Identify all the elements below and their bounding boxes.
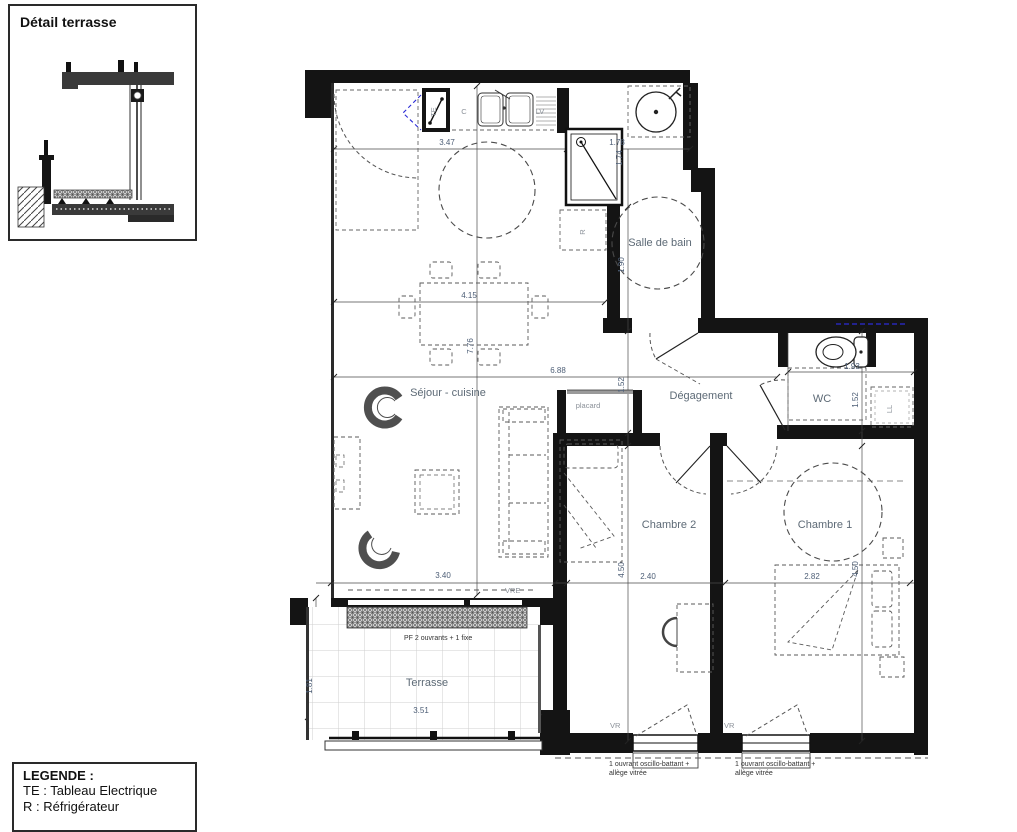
dining-chair — [430, 349, 452, 365]
bed-fold — [788, 570, 858, 650]
window-note-left-2: allège vitrée — [609, 770, 647, 777]
armchair — [362, 534, 396, 565]
window-note-right-2: allège vitrée — [735, 770, 773, 777]
sofa — [499, 407, 548, 557]
terrace-section-drawing — [10, 32, 195, 237]
window-chambre1 — [742, 705, 810, 768]
label-chambre2: Chambre 2 — [642, 519, 696, 531]
legend-title: LEGENDE : — [23, 768, 195, 783]
label-terrasse: Terrasse — [406, 677, 448, 689]
sill-hatch — [347, 607, 527, 628]
dim-chambre2-depth: 4.50 — [617, 562, 626, 578]
dim-terrasse-width: 3.51 — [413, 706, 429, 715]
dining-chair — [532, 296, 548, 318]
section-soil — [18, 187, 44, 227]
dim-sejour-width: 4.15 — [461, 291, 477, 300]
legend-panel: LEGENDE : TE : Tableau Electrique R : Ré… — [12, 762, 197, 832]
section-bottom-slab — [52, 190, 174, 222]
fixture-labels: TE C LV R LL — [429, 107, 894, 413]
bed-pillow — [872, 611, 892, 647]
dim-kitchen-width: 3.47 — [439, 138, 455, 147]
label-cuisson: C — [461, 107, 467, 116]
dim-chambre2-width: 2.40 — [640, 572, 656, 581]
label-vr-c2: VR — [610, 721, 621, 730]
desk-chair — [663, 618, 677, 646]
armchair — [368, 391, 399, 425]
window-note-left-1: 1 ouvrant oscillo-battant + — [609, 761, 689, 768]
section-glazing — [130, 85, 144, 200]
dim-bath-width: 1.90 — [617, 257, 626, 273]
label-te: TE — [429, 107, 438, 117]
legend-item-r: R : Réfrigérateur — [23, 799, 195, 815]
bed-single — [560, 440, 622, 562]
nightstand — [880, 657, 904, 677]
label-wc: WC — [813, 393, 831, 405]
window-note-right-1: 1 ouvrant oscillo-battant + — [735, 761, 815, 768]
washbasin — [628, 86, 690, 137]
coffee-table — [415, 470, 459, 514]
label-degagement: Dégagement — [670, 390, 733, 402]
armchairs — [362, 391, 399, 566]
label-chambre1: Chambre 1 — [798, 519, 852, 531]
label-sejour: Séjour - cuisine — [410, 387, 486, 399]
detail-terrasse-panel: Détail terrasse — [8, 4, 197, 241]
toilet — [816, 337, 868, 367]
dim-wc-width: 1.93 — [844, 362, 860, 371]
tv-console — [334, 437, 360, 509]
kitchen-door-arc — [334, 94, 418, 178]
legend-item-te: TE : Tableau Electrique — [23, 783, 195, 799]
dim-bay-width: 3.40 — [435, 571, 451, 580]
bed-double — [775, 565, 899, 655]
dim-wc-depth: 1.52 — [851, 392, 860, 408]
dim-sejour-total: 6.88 — [550, 366, 566, 375]
dining-chair — [478, 262, 500, 278]
floor-plan-page: { "detail_panel": { "title": "Détail ter… — [0, 0, 1017, 800]
dim-terrasse-depth: 1.81 — [305, 678, 314, 694]
wc-door — [760, 380, 785, 430]
dim-chambre1-depth: 4.50 — [851, 561, 860, 577]
terrace — [306, 590, 553, 750]
dining-chair — [399, 296, 415, 318]
section-top-slab — [62, 60, 174, 89]
label-lave-linge: LL — [885, 405, 894, 413]
detail-panel-title: Détail terrasse — [20, 14, 195, 30]
dining-chair — [478, 349, 500, 365]
dim-bath-niche-width: 1.78 — [609, 138, 625, 147]
dim-hall-width: 1.52 — [617, 377, 626, 393]
dim-bath-niche-depth: 1.74 — [615, 150, 624, 166]
label-salle-de-bain: Salle de bain — [628, 237, 692, 249]
sink — [478, 90, 533, 126]
label-placard: placard — [576, 401, 601, 410]
desk — [677, 604, 713, 672]
label-pf: PF 2 ouvrants + 1 fixe — [404, 635, 472, 642]
bathroom-door — [650, 333, 700, 384]
label-refrigerateur: R — [578, 229, 587, 235]
railing — [325, 731, 542, 750]
window-chambre2 — [633, 705, 698, 768]
bed-fold — [564, 473, 614, 549]
nightstand — [883, 538, 903, 558]
bed-pillow — [872, 571, 892, 607]
dim-sejour-depth: 7.76 — [466, 338, 475, 354]
label-vr-c1: VR — [724, 721, 735, 730]
bed-pillow — [564, 444, 618, 468]
coffee-table-inner — [420, 475, 454, 509]
label-vre: VRE — [505, 586, 520, 595]
chambre2-furniture — [560, 440, 713, 672]
label-lave-vaisselle: LV — [536, 107, 545, 116]
dim-chambre1-width: 2.82 — [804, 572, 820, 581]
dining-chair — [430, 262, 452, 278]
